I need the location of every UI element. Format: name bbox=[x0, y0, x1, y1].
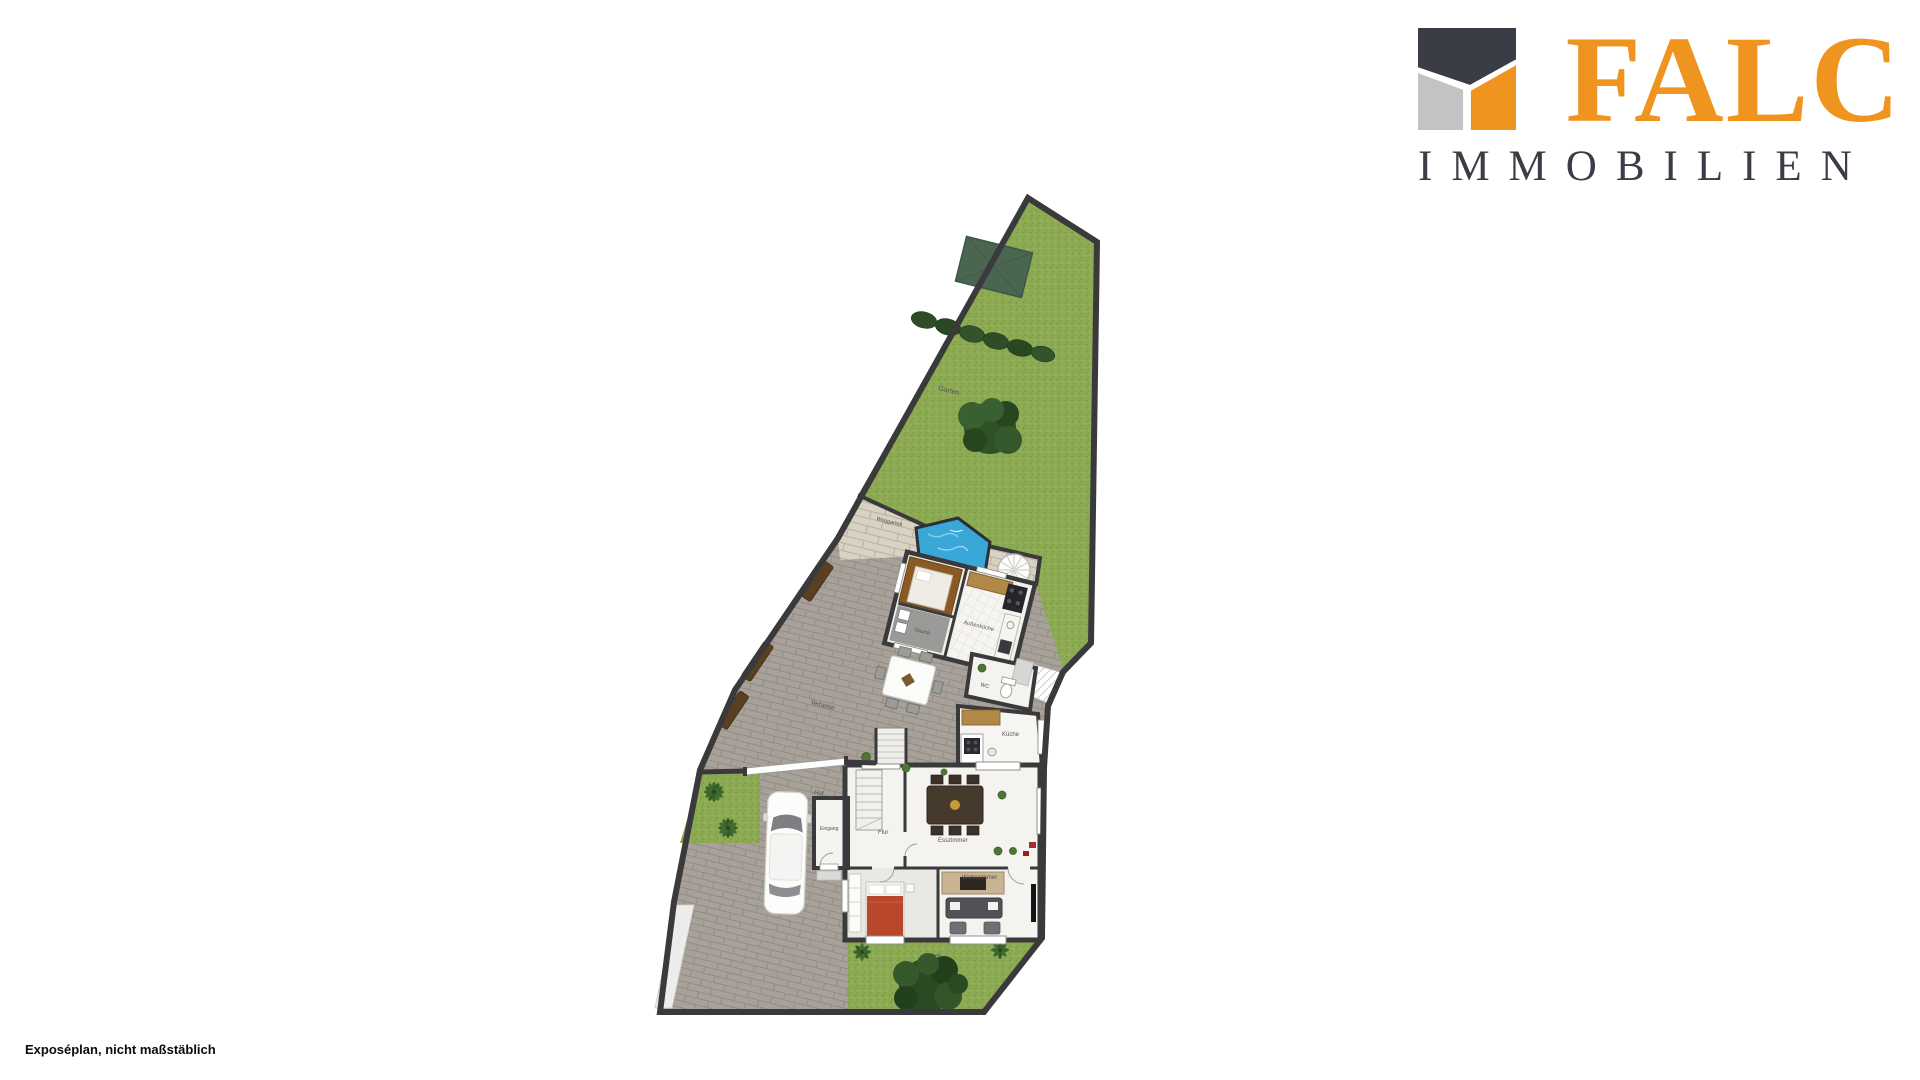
label-kitchen: Küche bbox=[1002, 732, 1020, 738]
terrace-stairs bbox=[876, 728, 906, 764]
garden-tree bbox=[958, 398, 1022, 454]
logo-mark bbox=[1418, 28, 1516, 130]
label-hallway: Flur bbox=[878, 830, 888, 836]
house: Flur Eingang Esszimmer bbox=[814, 761, 1044, 944]
footnote: Exposéplan, nicht maßstäblich bbox=[25, 1042, 216, 1057]
page: Weggarten Garten bbox=[0, 0, 1920, 1080]
bedroom bbox=[849, 874, 914, 936]
falc-logo: FALC IMMOBILIEN bbox=[1418, 28, 1902, 191]
label-dining: Esszimmer bbox=[938, 838, 968, 844]
company-subtitle: IMMOBILIEN bbox=[1418, 142, 1920, 191]
kitchen-room: Küche bbox=[958, 706, 1045, 768]
palm-tree bbox=[853, 943, 871, 961]
company-name: FALC bbox=[1516, 28, 1902, 132]
label-living: Wohnzimmer bbox=[962, 875, 997, 881]
label-entrance: Eingang bbox=[820, 826, 839, 832]
car bbox=[760, 791, 812, 915]
